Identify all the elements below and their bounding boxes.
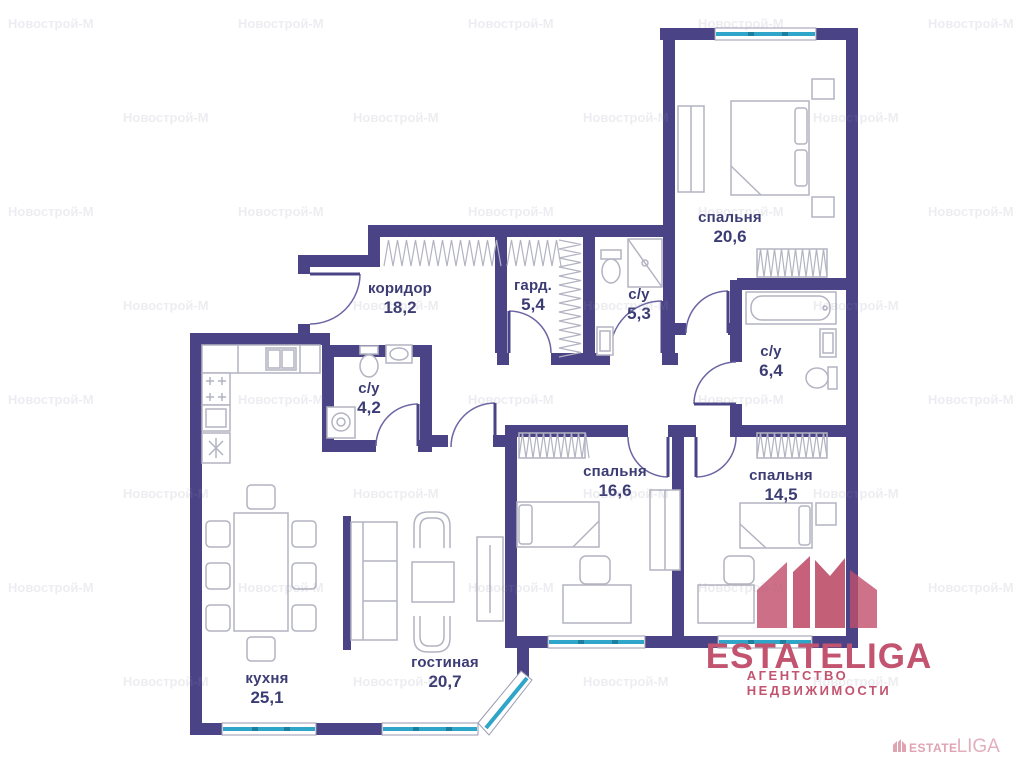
room-label-bedroom-2: спальня 16,6 bbox=[583, 463, 647, 501]
room-label-living-room: гостиная 20,7 bbox=[411, 654, 479, 692]
sink bbox=[597, 327, 613, 355]
room-label-kitchen: кухня 25,1 bbox=[245, 670, 288, 708]
toilet bbox=[806, 367, 837, 389]
single-bed bbox=[517, 502, 599, 547]
sofa bbox=[351, 522, 397, 640]
dining-chair bbox=[206, 605, 230, 631]
desk bbox=[698, 585, 754, 623]
dining-chair bbox=[247, 637, 275, 661]
toilet bbox=[601, 250, 621, 283]
room-label-wardrobe: гард. 5,4 bbox=[514, 277, 552, 315]
armchair bbox=[414, 616, 450, 652]
kitchen-sink bbox=[266, 348, 296, 370]
dining-chair bbox=[206, 521, 230, 547]
closet-hatch bbox=[384, 240, 501, 266]
closet-hatch bbox=[559, 240, 581, 357]
chair bbox=[580, 556, 610, 584]
room-label-bedroom-3: спальня 14,5 bbox=[749, 467, 813, 505]
coffee-table bbox=[412, 562, 454, 602]
floor-plan-drawing bbox=[0, 0, 1024, 768]
kitchen-counter bbox=[202, 345, 320, 373]
wardrobe-cabinet bbox=[650, 490, 680, 570]
armchair bbox=[414, 512, 450, 548]
room-label-bedroom-1: спальня 20,6 bbox=[698, 209, 762, 247]
estateliga-watermark-estate: ESTATE bbox=[909, 741, 958, 755]
single-bed bbox=[740, 503, 836, 548]
dining-chair bbox=[247, 485, 275, 509]
dining-chair bbox=[292, 605, 316, 631]
sink bbox=[386, 345, 412, 363]
washing-machine bbox=[327, 407, 355, 438]
estateliga-watermark: ESTATE LIGA bbox=[893, 736, 1000, 758]
stove bbox=[202, 373, 230, 405]
room-label-corridor: коридор 18,2 bbox=[368, 280, 432, 318]
tv-cabinet bbox=[477, 537, 503, 621]
room-label-bathroom-2: с/у 6,4 bbox=[759, 343, 783, 381]
dining-chair bbox=[206, 563, 230, 589]
dining-chair bbox=[292, 521, 316, 547]
estateliga-watermark-liga: LIGA bbox=[957, 736, 1000, 758]
bathtub bbox=[746, 292, 836, 324]
toilet bbox=[360, 346, 378, 377]
estateliga-watermark-icon bbox=[893, 738, 909, 752]
double-bed bbox=[731, 79, 834, 217]
room-label-bathroom-1: с/у 5,3 bbox=[627, 286, 651, 324]
oven bbox=[202, 405, 230, 431]
furniture-layer bbox=[202, 79, 837, 661]
shower bbox=[628, 239, 662, 287]
room-label-bathroom-3: с/у 4,2 bbox=[357, 380, 381, 418]
floor-plan-page: спальня 20,6 коридор 18,2 гард. 5,4 с/у … bbox=[0, 0, 1024, 768]
wardrobe-cabinet bbox=[678, 106, 704, 192]
fridge bbox=[202, 433, 230, 463]
dining-chair bbox=[292, 563, 316, 589]
closet-hatch bbox=[507, 240, 561, 266]
desk bbox=[563, 585, 631, 623]
dining-table bbox=[206, 485, 316, 661]
chair bbox=[724, 556, 754, 584]
sink bbox=[820, 329, 836, 357]
